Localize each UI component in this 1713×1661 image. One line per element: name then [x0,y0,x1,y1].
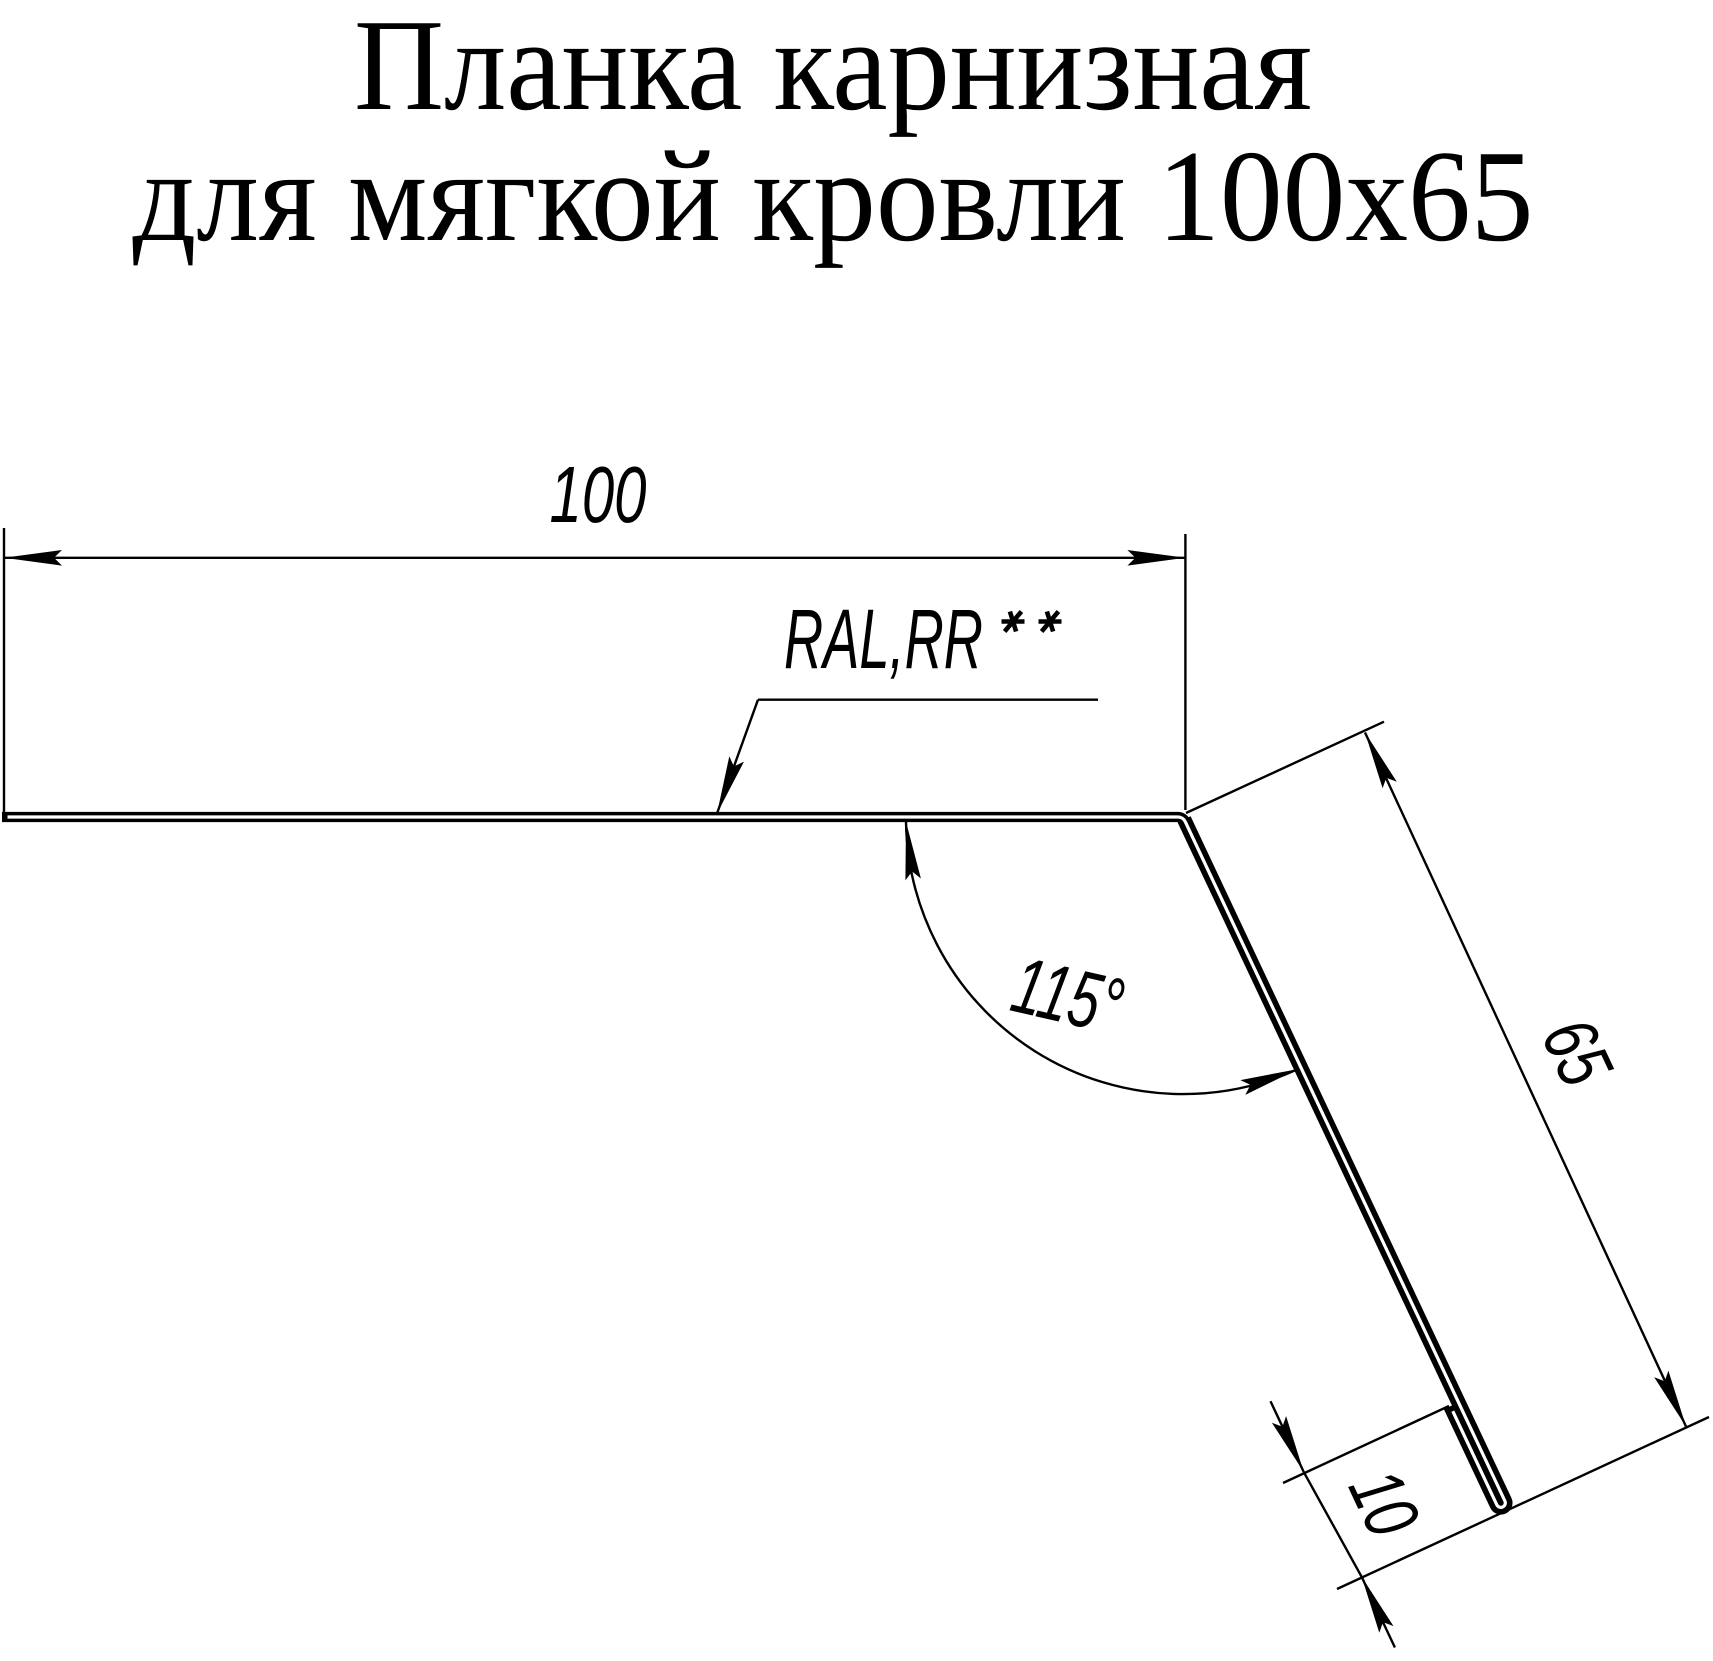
svg-text:для мягкой кровли 100х65: для мягкой кровли 100х65 [133,124,1534,269]
svg-text:100: 100 [550,450,647,539]
svg-text:RAL,RR: RAL,RR [784,592,983,686]
svg-text:Планка карнизная: Планка карнизная [354,0,1312,138]
